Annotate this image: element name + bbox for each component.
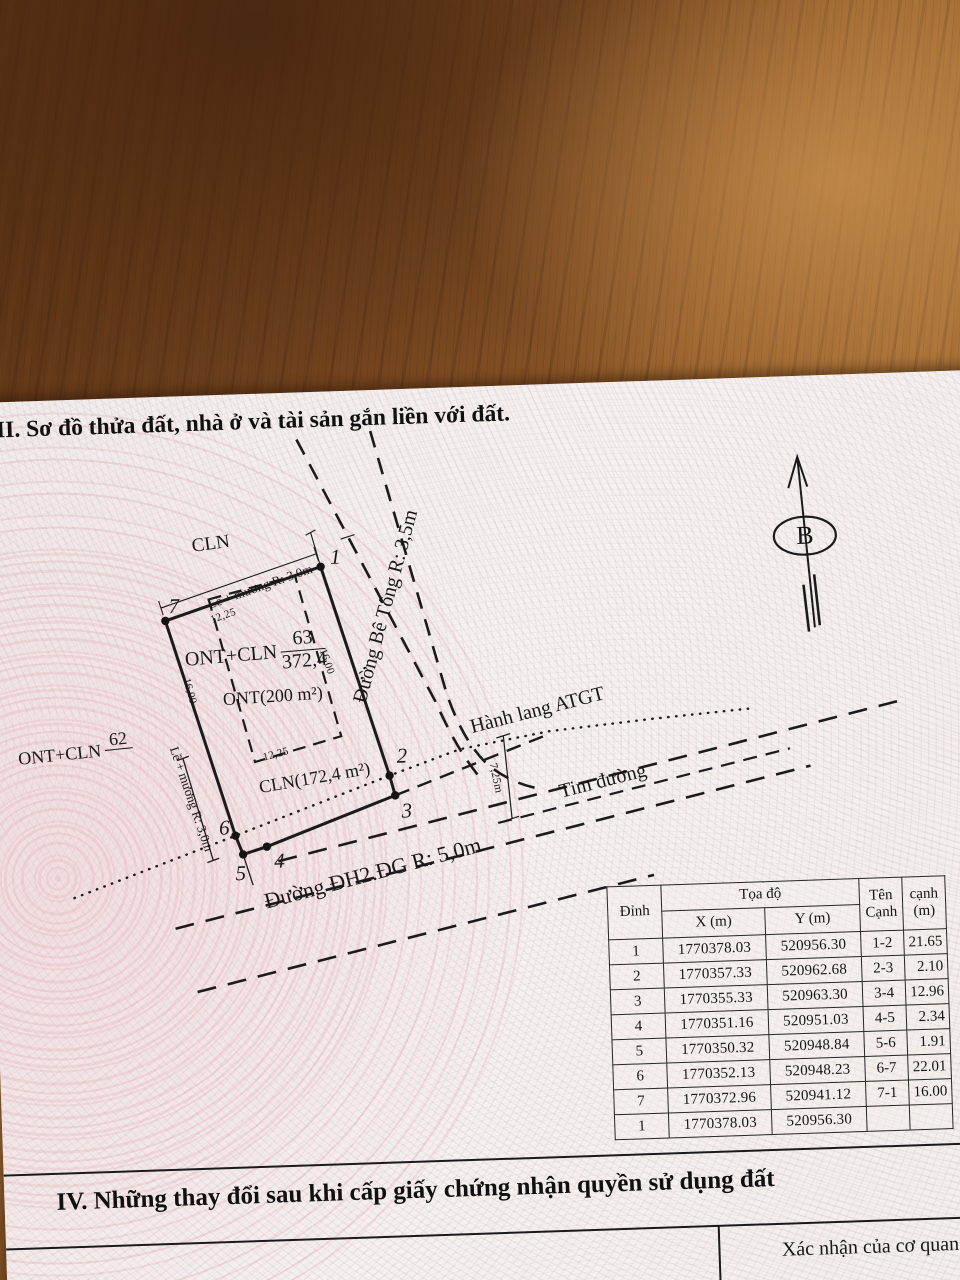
coord-x: 1770378.03 [668, 1110, 772, 1138]
coord-y: 520948.84 [769, 1031, 865, 1059]
vertex-label-6: 6 [219, 815, 230, 840]
header-x: X (m) [662, 908, 766, 938]
parcel-63-fraction: 63372,4 [279, 626, 328, 674]
vertex-id: 7 [614, 1088, 669, 1115]
edge-length: 21.65 [903, 929, 947, 955]
edge-length: 22.01 [908, 1054, 952, 1080]
vertex-label-2: 2 [396, 743, 407, 768]
coord-x: 1770350.32 [666, 1035, 770, 1063]
edge-name: 1-2 [861, 930, 905, 956]
edge-name: 2-3 [861, 955, 905, 981]
edge-name: 4-5 [863, 1005, 907, 1031]
coord-x: 1770372.96 [668, 1085, 772, 1113]
edge-length: 2.10 [904, 954, 948, 980]
coord-y: 520948.23 [770, 1056, 866, 1084]
vertex-id: 2 [609, 963, 664, 990]
coord-x: 1770357.33 [663, 960, 767, 988]
vertex-label-7: 7 [168, 594, 179, 619]
header-y: Y (m) [765, 905, 861, 935]
coordinate-table: Đỉnh Tọa độ TênCạnh cạnh(m) X (m) Y (m) … [606, 875, 953, 1140]
edge-name: 5-6 [864, 1030, 908, 1056]
coord-y: 520962.68 [766, 957, 862, 985]
edge-length [909, 1104, 953, 1130]
vertex-id: 1 [609, 938, 664, 965]
vertex-label-5: 5 [235, 861, 246, 886]
edge-length: 2.34 [906, 1004, 950, 1030]
vertex-label-4: 4 [274, 849, 285, 874]
vertex-id: 5 [612, 1038, 667, 1065]
coord-table-body: 11770378.03520956.301-221.6521770357.335… [609, 929, 953, 1140]
vertex-label-1: 1 [330, 545, 341, 570]
coord-x: 1770355.33 [664, 985, 768, 1013]
header-canh-m: cạnh(m) [902, 876, 947, 930]
coord-x: 1770351.16 [665, 1010, 769, 1038]
edge-length: 16.00 [908, 1079, 952, 1105]
parcel-63-landuse: ONT+CLN [184, 641, 278, 672]
parcel-63-area: 372,4 [281, 648, 328, 673]
coord-x: 1770378.03 [663, 935, 767, 963]
plot-diagram [0, 369, 960, 1280]
dim-top-verge-line [156, 529, 357, 616]
coord-x: 1770352.13 [667, 1060, 771, 1088]
edge-length: 12.96 [905, 979, 949, 1005]
coord-y: 520951.03 [768, 1006, 864, 1034]
road-centerline-dashes [496, 748, 792, 823]
edge-name: 6-7 [865, 1055, 909, 1081]
header-ten-canh: TênCạnh [859, 877, 904, 931]
edge-name: 3-4 [862, 980, 906, 1006]
vertex-id: 3 [610, 988, 665, 1015]
coord-y: 520956.30 [766, 932, 862, 960]
certificate-page: III. Sơ đồ thửa đất, nhà ở và tài sản gắ… [0, 369, 960, 1280]
coord-y: 520956.30 [771, 1106, 867, 1134]
parcel-62-landuse: ONT+CLN [17, 741, 102, 770]
edge-name [866, 1105, 910, 1131]
vertex-label-3: 3 [401, 798, 412, 823]
edge-name: 7-1 [865, 1080, 909, 1106]
header-dinh: Đỉnh [607, 885, 663, 940]
coord-y: 520963.30 [767, 982, 863, 1010]
vertex-id: 6 [613, 1063, 668, 1090]
vertex-id: 1 [614, 1113, 669, 1140]
parcel-62-fraction: 62 [103, 728, 135, 771]
photo-scene: III. Sơ đồ thửa đất, nhà ở và tài sản gắ… [0, 0, 960, 1280]
edge-length: 1.91 [907, 1029, 951, 1055]
coord-y: 520941.12 [771, 1081, 867, 1109]
north-arrow-label: B [796, 520, 814, 551]
vertex-id: 4 [611, 1013, 666, 1040]
